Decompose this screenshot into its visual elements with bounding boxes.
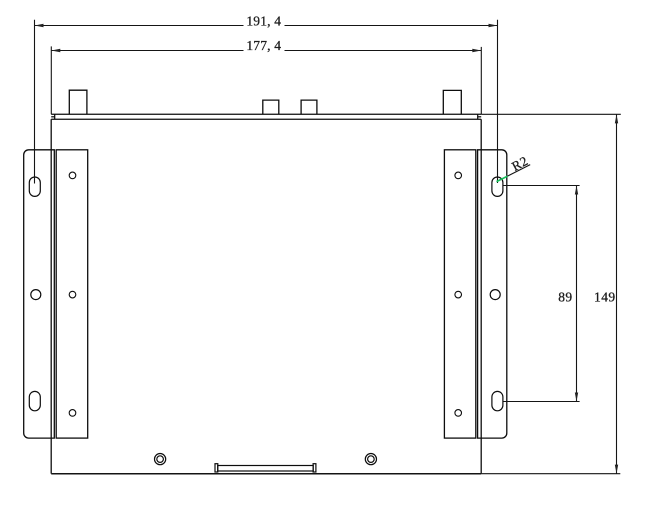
- svg-text:191, 4: 191, 4: [246, 13, 281, 28]
- svg-text:149: 149: [594, 289, 615, 304]
- svg-text:177, 4: 177, 4: [246, 38, 281, 53]
- svg-text:R2: R2: [509, 153, 530, 174]
- svg-text:89: 89: [558, 289, 572, 304]
